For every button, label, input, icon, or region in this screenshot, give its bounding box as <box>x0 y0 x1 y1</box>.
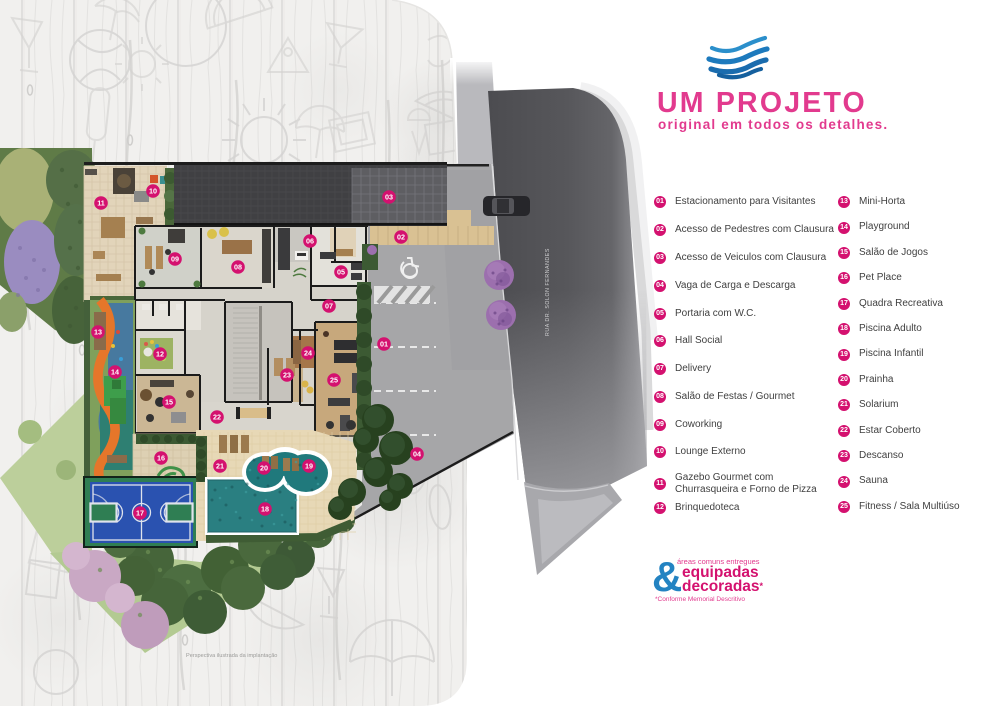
svg-text:08: 08 <box>234 263 242 272</box>
svg-text:04: 04 <box>413 450 421 459</box>
svg-text:24: 24 <box>304 349 312 358</box>
svg-text:RUA DR. SOLON FERNANDES: RUA DR. SOLON FERNANDES <box>545 248 551 336</box>
svg-text:03: 03 <box>385 193 393 202</box>
svg-text:16: 16 <box>157 454 165 463</box>
svg-text:13: 13 <box>94 328 102 337</box>
svg-text:Perspectiva ilustrada da impla: Perspectiva ilustrada da implantação <box>186 653 277 659</box>
svg-text:12: 12 <box>156 350 164 359</box>
svg-text:02: 02 <box>397 233 405 242</box>
svg-text:25: 25 <box>330 376 338 385</box>
svg-text:07: 07 <box>325 302 333 311</box>
svg-text:17: 17 <box>136 509 144 518</box>
svg-text:11: 11 <box>97 199 105 208</box>
svg-text:23: 23 <box>283 371 291 380</box>
svg-text:19: 19 <box>305 462 313 471</box>
svg-text:15: 15 <box>165 398 173 407</box>
svg-text:06: 06 <box>306 237 314 246</box>
svg-text:05: 05 <box>337 268 345 277</box>
svg-text:14: 14 <box>111 368 119 377</box>
svg-text:22: 22 <box>213 413 221 422</box>
svg-text:21: 21 <box>216 462 224 471</box>
svg-text:10: 10 <box>149 187 157 196</box>
svg-text:18: 18 <box>261 505 269 514</box>
svg-text:01: 01 <box>380 340 388 349</box>
svg-text:09: 09 <box>171 255 179 264</box>
svg-text:20: 20 <box>260 464 268 473</box>
